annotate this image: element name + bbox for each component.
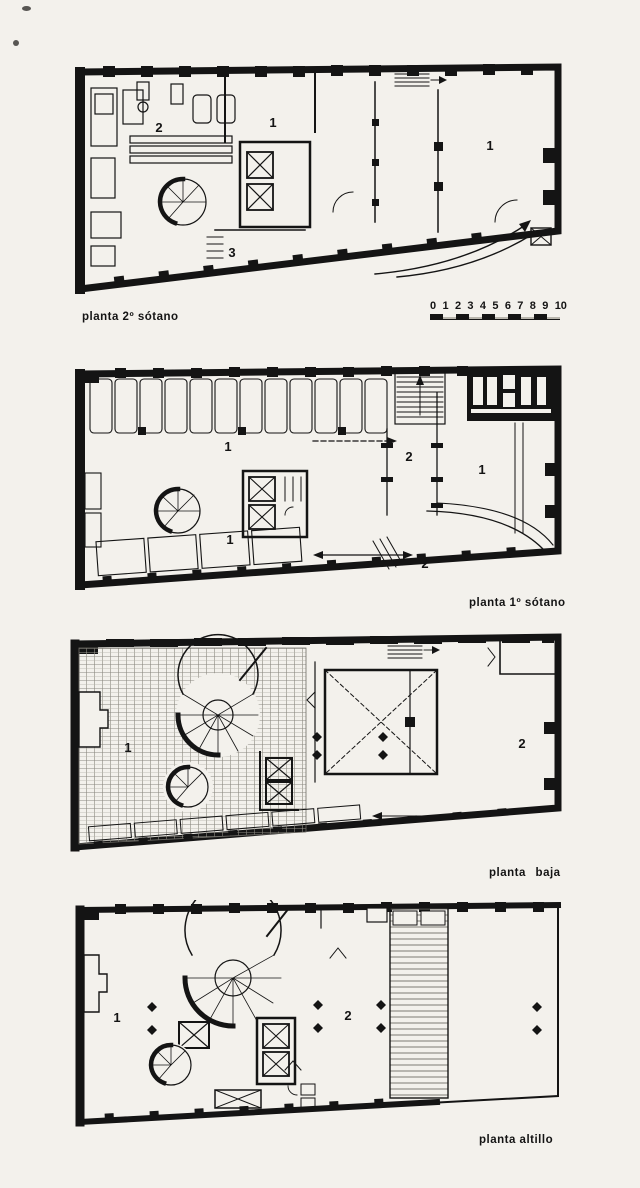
- spiral-staircase: [149, 1043, 193, 1087]
- spiral-staircase: [156, 489, 200, 533]
- room-number: 2: [344, 1008, 351, 1023]
- room-number: 2: [155, 120, 162, 135]
- upper-stair: [388, 642, 440, 658]
- scale-tick: 1: [442, 301, 448, 312]
- scale-segment: [521, 317, 534, 319]
- bottom-wall-ticks: [114, 232, 482, 282]
- void-x-marker: [307, 662, 437, 782]
- scale-segment: [534, 314, 547, 319]
- scan-speck: [22, 6, 31, 11]
- floor-plan-drawing-baja: 1 2: [70, 632, 563, 855]
- plan-label-sotano2: planta 2º sótano: [82, 311, 179, 323]
- columns: [312, 722, 558, 790]
- ramp-curve: [427, 503, 553, 549]
- spiral-staircase: [163, 762, 213, 812]
- plan-sotano2: 2 1 1 3: [75, 62, 563, 295]
- scale-tick: 7: [517, 301, 523, 312]
- scale-segment: [508, 314, 521, 319]
- scale-segments: [430, 313, 560, 320]
- scale-tick: 3: [467, 301, 473, 312]
- service-rooms-block: [467, 371, 558, 421]
- room-number: 1: [269, 115, 276, 130]
- scan-speck: [13, 40, 19, 46]
- scale-tick: 4: [480, 301, 486, 312]
- room-number: 1: [486, 138, 493, 153]
- room-number: 1: [226, 532, 233, 547]
- plan-label-altillo: planta altillo: [479, 1134, 553, 1146]
- fan-staircase: [183, 900, 321, 1028]
- building-outline: [80, 905, 558, 1122]
- floor-plan-drawing-sotano1: 1 2 1 1 2: [75, 365, 563, 590]
- plan-label-baja: planta baja: [489, 867, 561, 879]
- scale-tick: 8: [530, 301, 536, 312]
- room-number: 2: [405, 449, 412, 464]
- scale-segment: [547, 317, 560, 319]
- plan-sotano1: 1 2 1 1 2: [75, 365, 563, 590]
- room-number: 1: [113, 1010, 120, 1025]
- spiral-staircase: [160, 179, 206, 225]
- left-rooms: [85, 473, 101, 547]
- scale-tick: 9: [542, 301, 548, 312]
- room-number: 1: [124, 740, 131, 755]
- room-number: 3: [228, 245, 235, 260]
- scale-segment: [469, 317, 482, 319]
- skylight-x-box: [215, 1090, 261, 1108]
- scale-tick: 0: [430, 301, 436, 312]
- scale-segment: [456, 314, 469, 319]
- columns: [372, 119, 443, 206]
- building-outline: [80, 67, 558, 289]
- floor-plan-drawing-altillo: 1 2: [75, 900, 563, 1130]
- scale-tick: 6: [505, 301, 511, 312]
- scale-segment: [482, 314, 495, 319]
- equipment-room: [91, 82, 235, 266]
- scale-tick: 10: [555, 301, 567, 312]
- upper-stair: [395, 74, 447, 86]
- interior-walls: [215, 70, 438, 232]
- scale-segment: [430, 314, 443, 319]
- scale-numbers: 012345678910: [430, 301, 567, 312]
- room-number: 2: [518, 736, 525, 751]
- stair-hatch-marks: [207, 237, 223, 258]
- scale-segment: [443, 317, 456, 319]
- floor-plan-drawing-sotano2: 2 1 1 3: [75, 62, 563, 295]
- parking-stalls-top: [90, 379, 387, 433]
- elevator-shafts: [247, 152, 273, 210]
- elevator-core: [179, 1018, 295, 1084]
- room-number: 1: [224, 439, 231, 454]
- door-arcs: [333, 192, 517, 222]
- scanned-floor-plans-page: { "page": { "paper": "#f3f1ec", "ink": "…: [0, 0, 640, 1188]
- top-right-rooms: [488, 639, 558, 674]
- plan-altillo: 1 2: [75, 900, 563, 1130]
- left-bay-notch: [84, 955, 107, 1012]
- room-number: 2: [421, 556, 428, 571]
- plan-baja: 1 2: [70, 632, 563, 855]
- scale-bar: 012345678910: [430, 301, 567, 320]
- scale-tick: 2: [455, 301, 461, 312]
- scale-tick: 5: [492, 301, 498, 312]
- scale-segment: [495, 317, 508, 319]
- plan-label-sotano1: planta 1º sótano: [469, 597, 566, 609]
- room-number: 1: [478, 462, 485, 477]
